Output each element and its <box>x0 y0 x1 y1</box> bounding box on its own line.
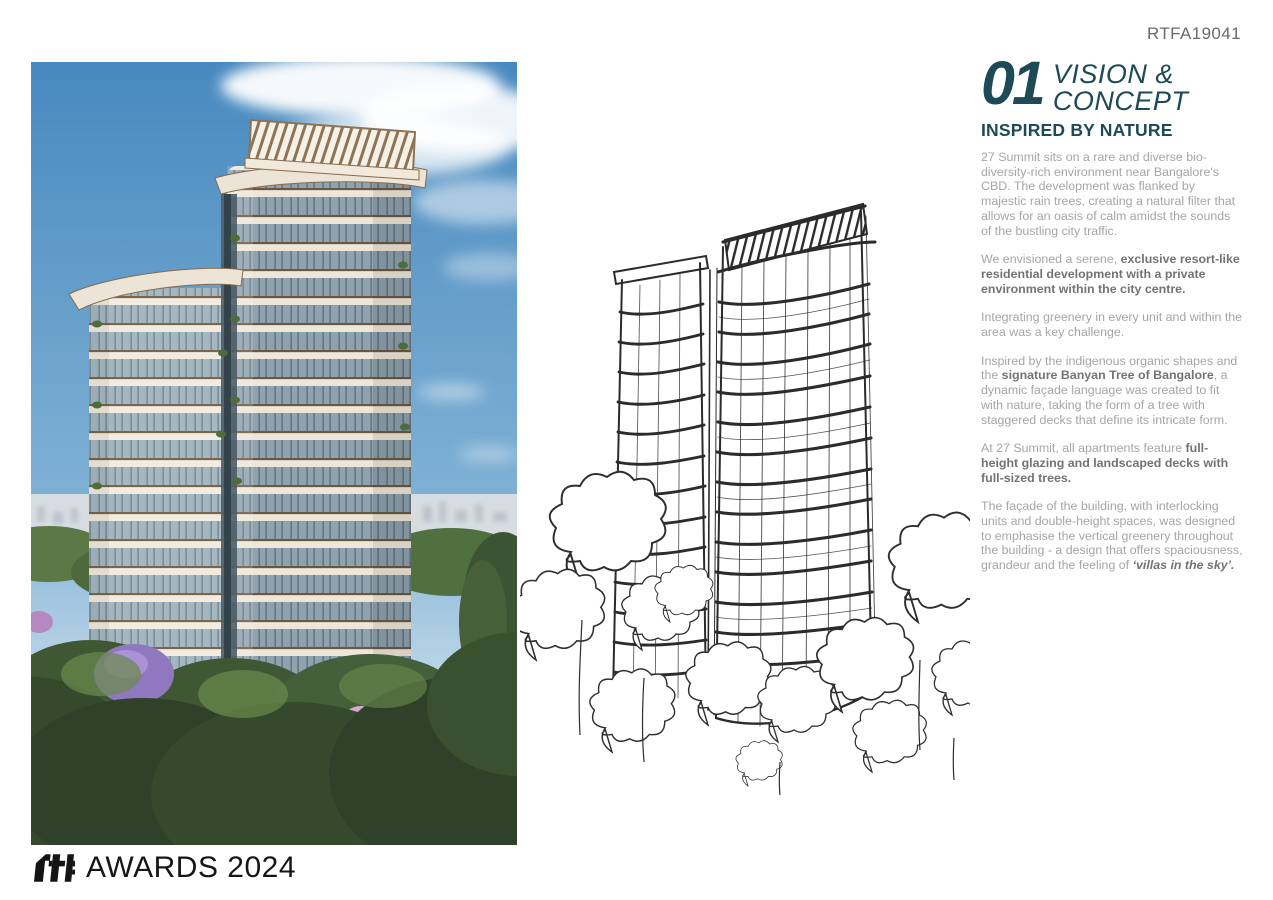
body-paragraphs: 27 Summit sits on a rare and diverse bio… <box>981 150 1243 573</box>
paragraph: Integrating greenery in every unit and w… <box>981 310 1243 339</box>
section-number: 01 <box>981 58 1043 108</box>
rtf-logo-icon <box>33 849 75 887</box>
paragraph: At 27 Summit, all apartments feature ful… <box>981 441 1243 485</box>
text-column: RTFA19041 01 VISION & CONCEPT INSPIRED B… <box>981 24 1243 587</box>
section-title-line1: VISION & <box>1053 61 1189 88</box>
building-render-photo <box>31 62 517 845</box>
footer: AWARDS 2024 <box>33 846 296 890</box>
awards-label: AWARDS 2024 <box>86 851 296 885</box>
section-subtitle: INSPIRED BY NATURE <box>981 120 1243 141</box>
paragraph: Inspired by the indigenous organic shape… <box>981 354 1243 428</box>
section-header: 01 VISION & CONCEPT <box>981 58 1243 115</box>
concept-sketch <box>520 150 970 800</box>
presentation-board: RTFA19041 01 VISION & CONCEPT INSPIRED B… <box>0 0 1273 900</box>
entry-code: RTFA19041 <box>981 24 1241 44</box>
concept-sketch-graphic <box>520 150 970 800</box>
building-render-graphic <box>31 62 517 845</box>
paragraph: We envisioned a serene, exclusive resort… <box>981 252 1243 296</box>
paragraph: The façade of the building, with interlo… <box>981 499 1243 573</box>
paragraph: 27 Summit sits on a rare and diverse bio… <box>981 150 1243 238</box>
section-title-line2: CONCEPT <box>1053 88 1189 115</box>
section-title: VISION & CONCEPT <box>1053 61 1189 115</box>
